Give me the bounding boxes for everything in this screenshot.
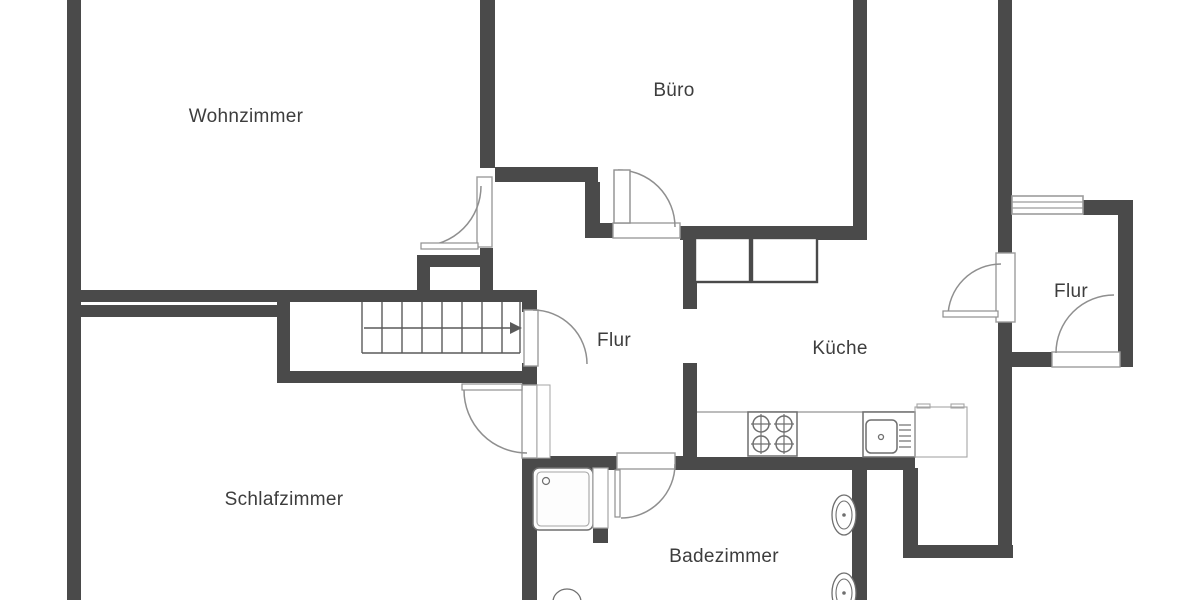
- wall: [495, 167, 598, 182]
- door-eingang-opening: [1052, 352, 1120, 367]
- kitchen-sink-basin: [866, 420, 897, 453]
- door-schlafzimmer-leaf: [462, 384, 522, 390]
- wall: [81, 290, 537, 302]
- kitchen-cabinet: [695, 238, 750, 282]
- wall: [480, 0, 495, 168]
- door-badezimmer-opening: [617, 453, 675, 469]
- shower-tray: [533, 468, 593, 530]
- toilet-drain-icon: [842, 513, 846, 517]
- room-label-kueche: Küche: [812, 338, 867, 360]
- floorplan-svg: [0, 0, 1200, 600]
- wall: [522, 290, 537, 312]
- wall: [277, 371, 537, 383]
- room-label-wohnzimmer: Wohnzimmer: [189, 106, 304, 128]
- door-badezimmer-leaf: [615, 470, 620, 517]
- wall: [853, 0, 867, 240]
- kitchen-cabinet: [752, 238, 817, 282]
- room-label-schlafzimmer: Schlafzimmer: [225, 489, 344, 511]
- door-badezimmer-swing-arc: [621, 464, 675, 518]
- door-schlafzimmer-swing-arc: [464, 390, 527, 453]
- wall: [277, 293, 290, 383]
- wall: [81, 305, 277, 317]
- shower-partition: [593, 468, 608, 528]
- wall: [585, 182, 600, 238]
- wall: [683, 363, 697, 462]
- window: [1012, 196, 1083, 214]
- room-label-buero: Büro: [653, 80, 694, 102]
- wall: [67, 0, 81, 600]
- wall: [903, 545, 1013, 558]
- wall: [598, 223, 613, 238]
- door-buero-opening: [613, 223, 680, 238]
- wall: [1118, 215, 1133, 367]
- bath-fixture: [553, 589, 581, 600]
- wall: [674, 456, 697, 470]
- door-wohnzimmer-leaf: [421, 243, 478, 249]
- wall: [903, 468, 918, 558]
- kitchen-appliance: [915, 407, 967, 457]
- door-eingang-swing-arc: [1056, 295, 1114, 353]
- door-kueche-leaf: [943, 311, 998, 317]
- room-label-flur-mitte: Flur: [597, 330, 631, 352]
- door-treppe-swing-arc: [533, 310, 587, 364]
- wall: [1083, 200, 1133, 215]
- door-treppe-opening: [524, 310, 538, 366]
- wall: [593, 528, 608, 543]
- wall: [1012, 352, 1052, 367]
- door-buero-leaf: [614, 170, 630, 223]
- toilet-drain-icon: [842, 591, 846, 595]
- room-label-flur-eingang: Flur: [1054, 281, 1088, 303]
- door-schlafzimmer-opening: [522, 385, 537, 458]
- door-schlafzimmer-frame: [537, 385, 550, 458]
- wall: [480, 248, 493, 302]
- room-label-badezimmer: Badezimmer: [669, 546, 779, 568]
- door-wohnzimmer-opening: [477, 177, 492, 247]
- door-kueche-swing-arc: [948, 264, 1001, 317]
- wall: [697, 457, 915, 470]
- floorplan: Wohnzimmer Büro Flur Küche Flur Schlafzi…: [0, 0, 1200, 600]
- wall: [852, 470, 867, 600]
- door-wohnzimmer-swing-arc: [421, 186, 481, 246]
